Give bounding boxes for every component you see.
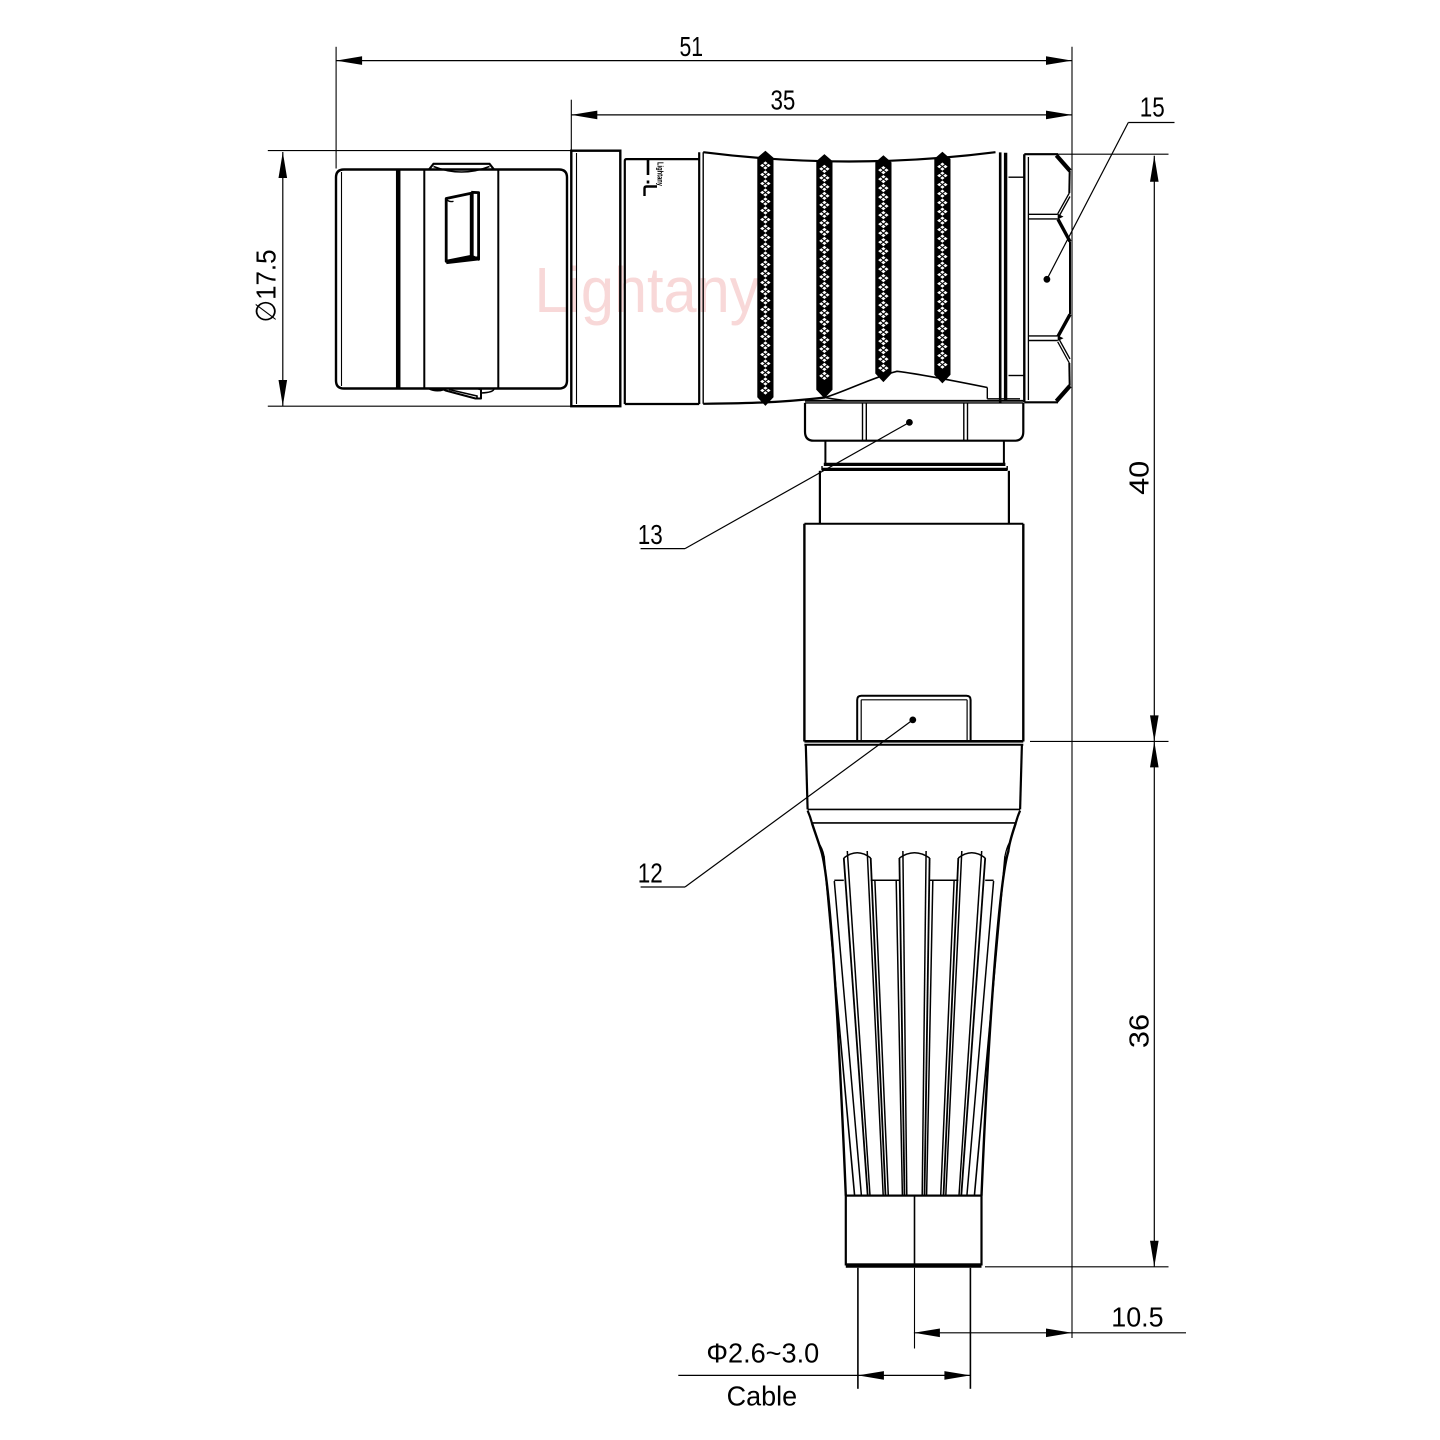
svg-text:40: 40 [1123,461,1154,495]
svg-text:15: 15 [1140,92,1165,123]
svg-text:Lightany: Lightany [535,254,760,326]
svg-text:35: 35 [770,85,795,116]
svg-text:∅17.5: ∅17.5 [251,250,282,323]
svg-text:10.5: 10.5 [1111,1301,1163,1332]
svg-text:Lightany: Lightany [656,162,665,186]
svg-text:12: 12 [638,858,663,889]
svg-text:Φ2.6~3.0: Φ2.6~3.0 [706,1338,819,1369]
svg-text:13: 13 [638,519,663,550]
svg-text:Cable: Cable [727,1381,798,1412]
svg-text:51: 51 [680,31,704,62]
svg-text:36: 36 [1123,1014,1154,1048]
